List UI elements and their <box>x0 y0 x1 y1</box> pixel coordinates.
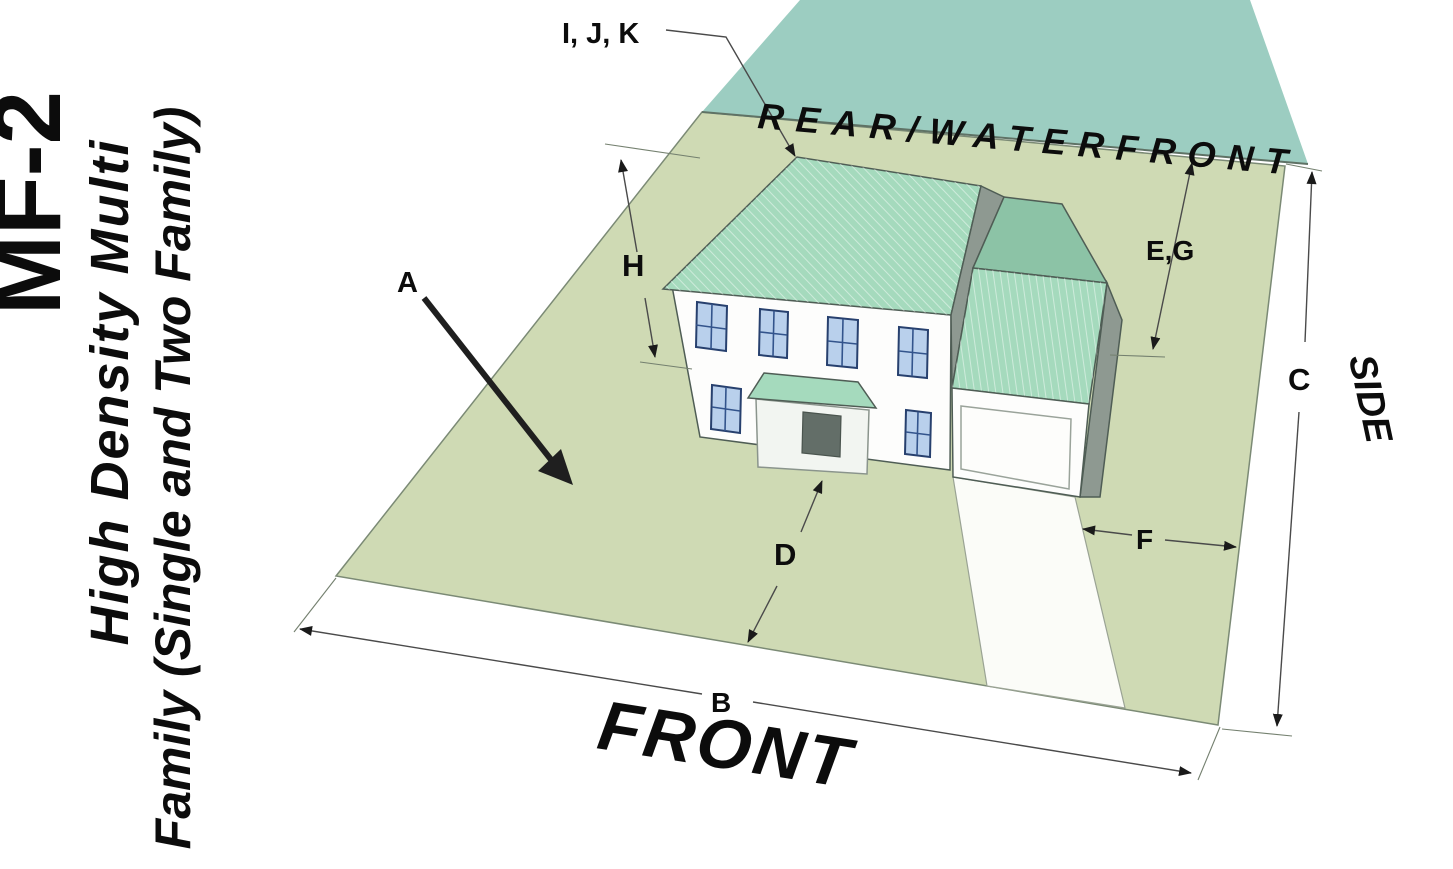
zone-name-line2: Family (Single and Two Family) <box>145 107 201 850</box>
front-door <box>802 412 841 457</box>
label-f: F <box>1136 524 1153 555</box>
zone-code: MF-2 <box>0 91 81 315</box>
garage-roof-texture <box>952 268 1107 404</box>
zone-name-line1: High Density Multi <box>80 139 140 646</box>
label-a: A <box>397 267 418 299</box>
label-ijk: I, J, K <box>562 18 639 50</box>
label-eg: E,G <box>1146 235 1194 266</box>
zoning-diagram: A H I, J, K E,G C F D B REAR/WATERFRONT … <box>0 0 1453 869</box>
label-h: H <box>622 248 644 283</box>
label-c: C <box>1288 362 1310 397</box>
label-d: D <box>774 537 796 572</box>
